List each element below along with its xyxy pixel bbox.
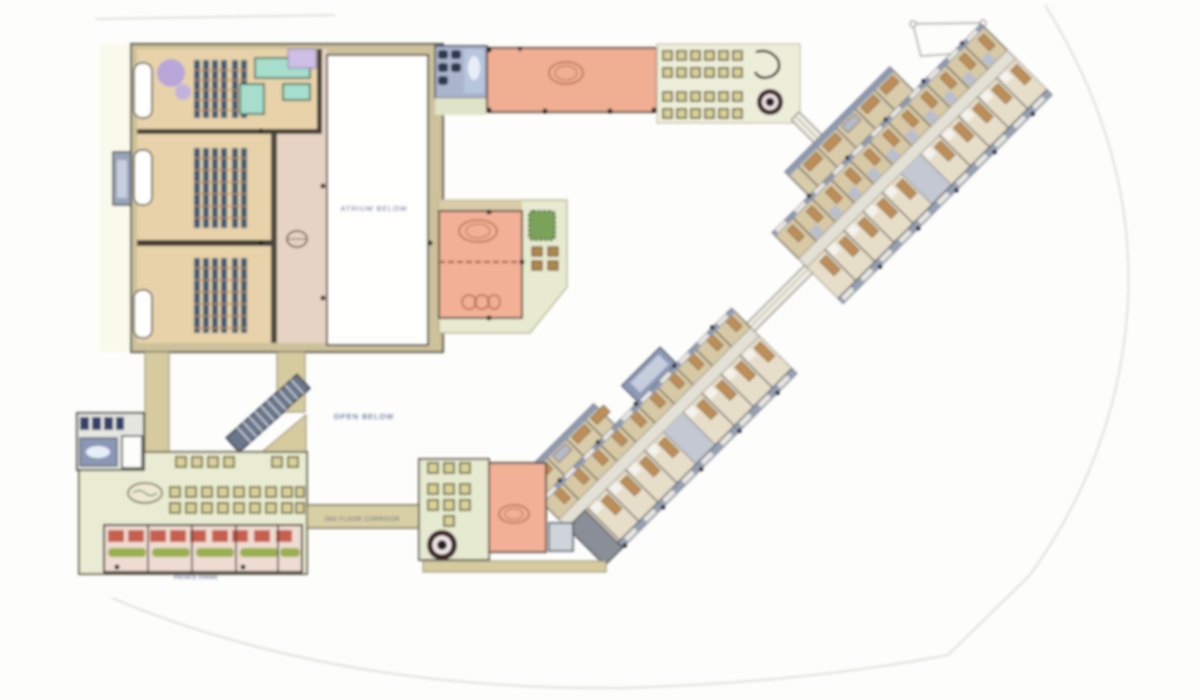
svg-text:PRIVATE DINING: PRIVATE DINING	[174, 575, 218, 581]
svg-text:ATRIUM BELOW: ATRIUM BELOW	[341, 204, 408, 213]
svg-text:OPEN BELOW: OPEN BELOW	[334, 412, 394, 421]
svg-text:2ND FLOOR CORRIDOR: 2ND FLOOR CORRIDOR	[324, 517, 400, 523]
